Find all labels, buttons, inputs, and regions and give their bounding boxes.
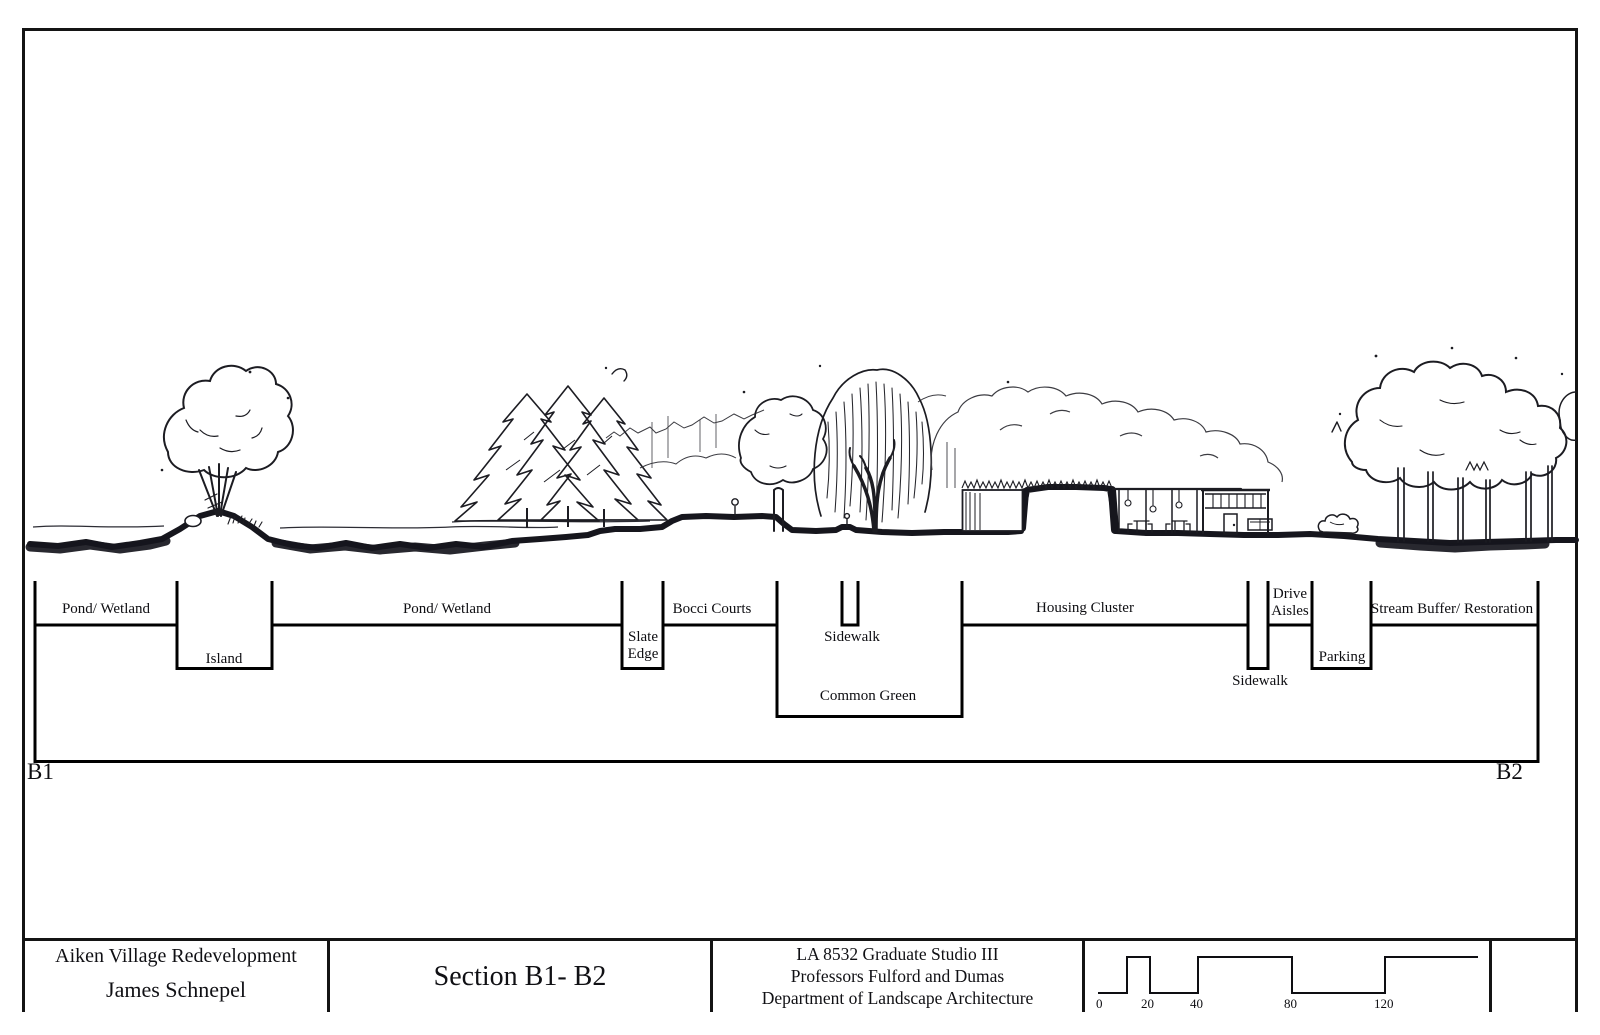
title-block-project-cell: Aiken Village Redevelopment James Schnep… bbox=[25, 941, 330, 1012]
bird-icons bbox=[612, 369, 1341, 432]
section-mark-b2: B2 bbox=[1496, 760, 1523, 784]
section-sketch bbox=[0, 0, 1600, 1035]
background-canopy bbox=[931, 387, 1282, 488]
building-facade bbox=[1201, 490, 1272, 534]
door bbox=[1224, 514, 1237, 534]
professors: Professors Fulford and Dumas bbox=[713, 965, 1082, 987]
department: Department of Landscape Architecture bbox=[713, 987, 1082, 1009]
scale-tick-0: 0 bbox=[1096, 996, 1103, 1011]
island-tree bbox=[164, 366, 293, 527]
label-common-green: Common Green bbox=[820, 688, 916, 705]
sheet-title: Section B1- B2 bbox=[434, 961, 607, 993]
bollard-icons bbox=[732, 499, 850, 527]
section-mark-b1: B1 bbox=[27, 760, 54, 784]
pine-trees bbox=[455, 386, 667, 528]
shrub bbox=[1318, 514, 1358, 533]
title-block: Aiken Village Redevelopment James Schnep… bbox=[22, 938, 1578, 1012]
title-block-course-cell: LA 8532 Graduate Studio III Professors F… bbox=[713, 941, 1085, 1012]
course-name: LA 8532 Graduate Studio III bbox=[713, 943, 1082, 965]
pavilion bbox=[1113, 489, 1241, 533]
scale-tick-120: 120 bbox=[1374, 996, 1394, 1011]
willow-tree bbox=[814, 369, 931, 531]
scale-tick-40: 40 bbox=[1190, 996, 1203, 1011]
label-slate-edge-line2: Edge bbox=[628, 646, 659, 663]
label-drive-aisles-line2: Aisles bbox=[1271, 603, 1309, 620]
label-pond-wetland-2: Pond/ Wetland bbox=[403, 601, 491, 618]
scale-tick-20: 20 bbox=[1141, 996, 1154, 1011]
title-block-sheet-title-cell: Section B1- B2 bbox=[330, 941, 713, 1012]
label-island: Island bbox=[206, 651, 243, 668]
label-sidewalk-lower: Sidewalk bbox=[1232, 673, 1288, 690]
scale-tick-80: 80 bbox=[1284, 996, 1297, 1011]
project-title: Aiken Village Redevelopment bbox=[25, 944, 327, 968]
label-housing-cluster: Housing Cluster bbox=[1036, 600, 1134, 617]
label-parking: Parking bbox=[1319, 649, 1366, 666]
label-pond-wetland-1: Pond/ Wetland bbox=[62, 601, 150, 618]
label-bocci-courts: Bocci Courts bbox=[673, 601, 752, 618]
ground-line bbox=[30, 487, 1576, 550]
label-drive-aisles-line1: Drive bbox=[1271, 586, 1309, 603]
scale-bar: 0 20 40 80 120 bbox=[1085, 941, 1492, 1012]
label-slate-edge: Slate Edge bbox=[628, 629, 659, 662]
drawing-sheet: Pond/ Wetland Island Pond/ Wetland Slate… bbox=[0, 0, 1600, 1035]
background-treeline bbox=[606, 395, 946, 468]
bird-icon bbox=[612, 369, 627, 381]
section-bracket bbox=[35, 581, 1538, 762]
label-slate-edge-line1: Slate bbox=[628, 629, 659, 646]
label-drive-aisles: Drive Aisles bbox=[1271, 586, 1309, 619]
title-block-scale-cell: 0 20 40 80 120 bbox=[1085, 941, 1492, 1012]
title-block-empty-cell bbox=[1492, 941, 1575, 1012]
label-stream-buffer: Stream Buffer/ Restoration bbox=[1371, 601, 1533, 618]
designer-name: James Schnepel bbox=[25, 977, 327, 1003]
label-sidewalk-upper: Sidewalk bbox=[824, 629, 880, 646]
stream-buffer-trees bbox=[1345, 362, 1576, 542]
bird-icon bbox=[1332, 422, 1341, 432]
